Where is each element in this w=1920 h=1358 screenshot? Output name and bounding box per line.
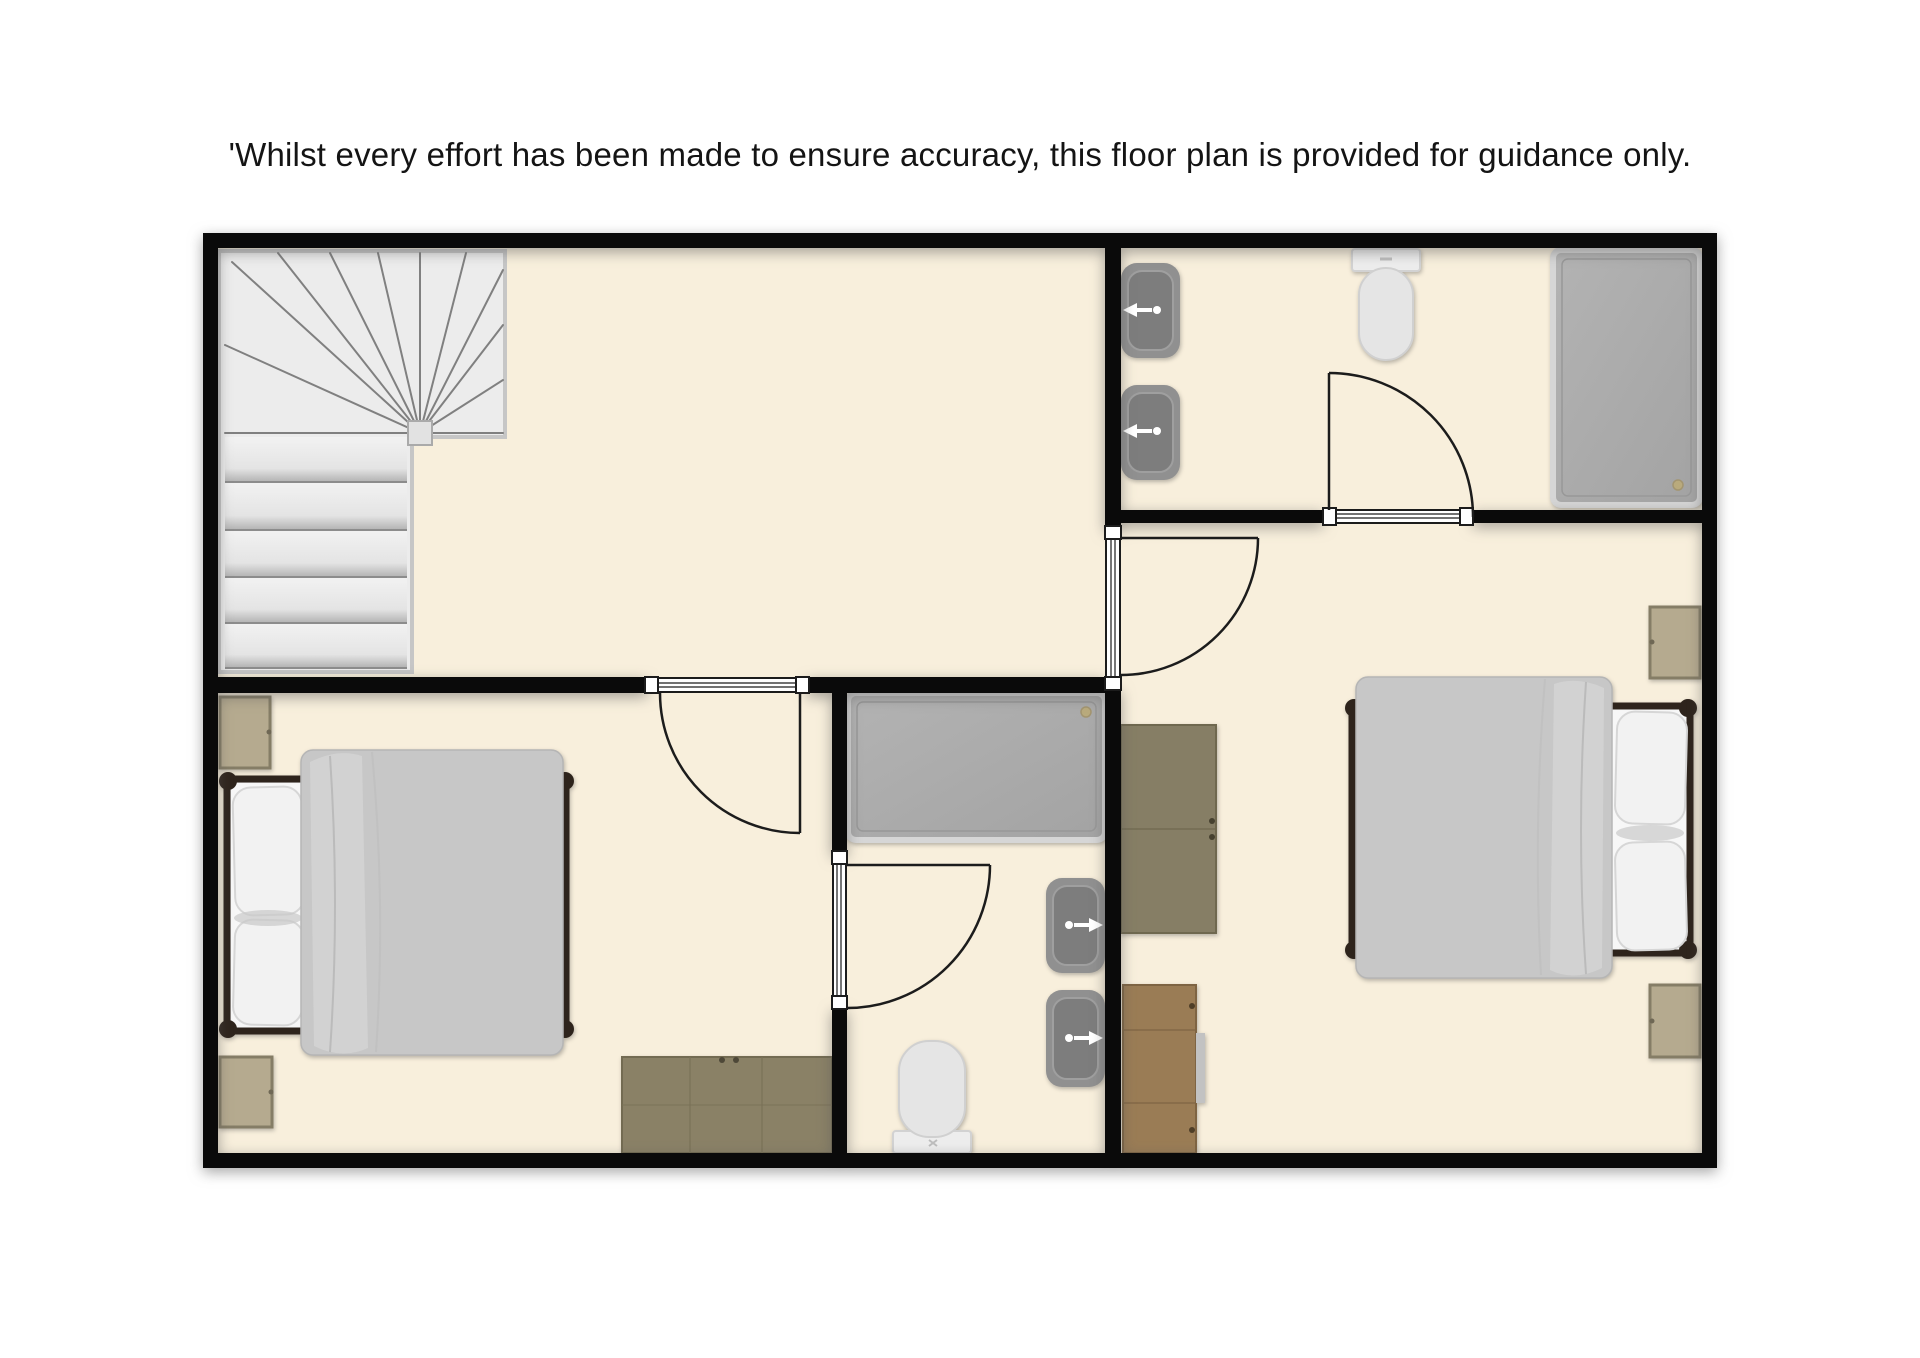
pillow [1615, 711, 1688, 825]
right-bed [1345, 677, 1697, 978]
outer-wall-left [203, 233, 218, 1168]
staircase-newel-post [408, 421, 432, 445]
outer-wall-right [1702, 233, 1717, 1168]
floor-plan [0, 0, 1920, 1358]
shower-drain [1673, 480, 1683, 490]
left-bedroom-chest [622, 1057, 832, 1153]
middle-bathroom-sink-lower [1046, 990, 1105, 1087]
top-bathroom-wall-right-segment [1473, 510, 1702, 523]
landing-wall-left-segment [218, 677, 647, 693]
top-bathroom-wall-left-segment [1121, 510, 1323, 523]
right-bedside-table-bottom [1650, 985, 1701, 1057]
shower-drain [1081, 707, 1091, 717]
left-bedside-table-bottom [220, 1057, 274, 1127]
right-bedroom-wardrobe-lower [1123, 985, 1205, 1153]
staircase-straight-steps [225, 437, 407, 668]
pillow [232, 786, 304, 916]
pillow [233, 919, 305, 1026]
middle-bathroom-wall-upper [832, 693, 847, 853]
middle-bathroom-shower-tray [848, 693, 1105, 840]
middle-bathroom-wall-lower [832, 1008, 847, 1153]
central-wall-lower [1105, 688, 1121, 1153]
pillow [1615, 841, 1688, 951]
duvet [1356, 677, 1612, 978]
middle-bathroom-toilet [893, 1041, 971, 1153]
left-bedside-table-top [220, 697, 272, 768]
right-bedroom-wardrobe-upper [1121, 725, 1216, 933]
duvet [301, 750, 563, 1055]
central-wall-upper [1105, 248, 1121, 528]
landing-wall-right-segment [807, 677, 1105, 693]
middle-bathroom-sink-upper [1046, 878, 1105, 973]
top-bathroom-sink-upper [1121, 263, 1180, 358]
floorplan-page: 'Whilst every effort has been made to en… [0, 0, 1920, 1358]
top-bathroom-sink-lower [1121, 385, 1180, 480]
right-bedside-table-top [1650, 607, 1701, 678]
outer-wall-top [203, 233, 1717, 248]
outer-wall-bottom [203, 1153, 1717, 1168]
top-bathroom-toilet [1352, 249, 1420, 360]
top-bathroom-shower-tray [1553, 250, 1700, 505]
left-bed [219, 750, 574, 1055]
